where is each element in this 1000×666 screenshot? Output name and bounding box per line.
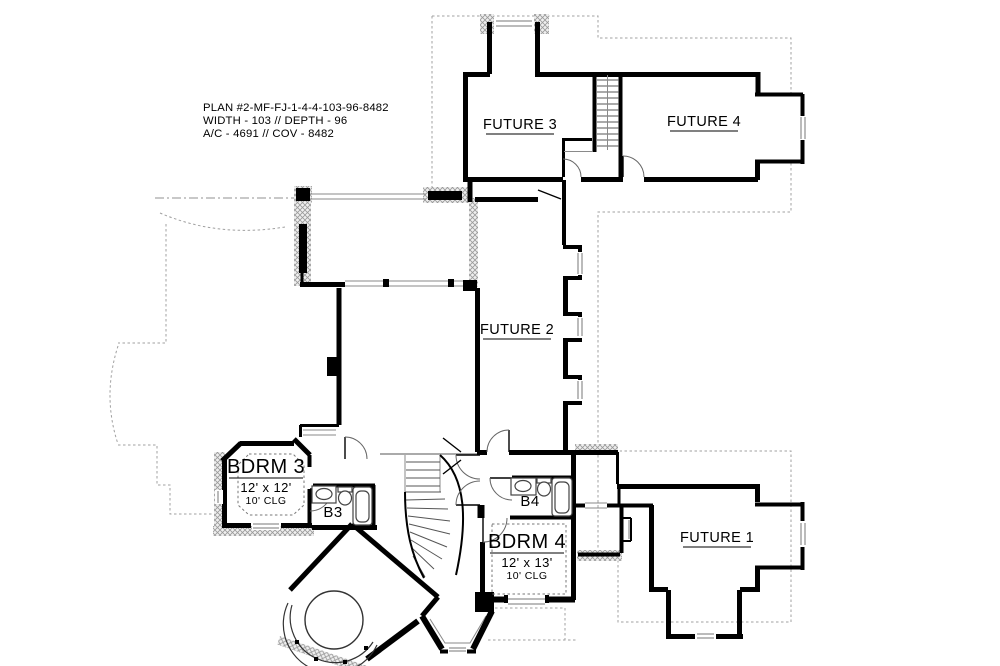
room-ceiling-bdrm3: 10' CLG bbox=[246, 495, 287, 507]
thin-lines bbox=[303, 194, 607, 643]
sink-icon bbox=[515, 481, 531, 492]
window-future4-right bbox=[799, 116, 807, 140]
room-label-bdrm4: BDRM 4 bbox=[488, 531, 566, 553]
plan-number-text: PLAN #2-MF-FJ-1-4-4-103-96-8482 bbox=[203, 102, 389, 114]
window-future2-bay2 bbox=[576, 317, 584, 338]
window-future1-right bbox=[799, 522, 807, 546]
room-label-bdrm3: BDRM 3 bbox=[227, 456, 305, 478]
room-label-future1: FUTURE 1 bbox=[680, 530, 754, 546]
room-label-future2: FUTURE 2 bbox=[480, 322, 554, 338]
floor-plan-canvas: PLAN #2-MF-FJ-1-4-4-103-96-8482 WIDTH - … bbox=[0, 0, 1000, 666]
room-size-bdrm4: 12' x 13' bbox=[501, 555, 552, 570]
window-future2-bay1 bbox=[576, 252, 584, 275]
sink-icon bbox=[316, 489, 332, 500]
staircase-curved bbox=[405, 455, 463, 578]
room-ceiling-bdrm4: 10' CLG bbox=[507, 570, 548, 582]
window-bdrm4-bottom bbox=[506, 595, 547, 607]
room-label-future3: FUTURE 3 bbox=[483, 117, 557, 133]
window-bdrm3-left bbox=[215, 490, 223, 504]
room-label-future4: FUTURE 4 bbox=[667, 114, 741, 130]
room-label-b4: B4 bbox=[520, 493, 539, 510]
staircase-upper bbox=[597, 75, 619, 150]
window-bdrm3-bottom bbox=[252, 521, 280, 530]
plan-area-text: A/C - 4691 // COV - 8482 bbox=[203, 128, 334, 140]
plan-dimensions-text: WIDTH - 103 // DEPTH - 96 bbox=[203, 115, 347, 127]
room-size-bdrm3: 12' x 12' bbox=[240, 480, 291, 495]
room-label-b3: B3 bbox=[323, 504, 342, 521]
floor-plan-page: PLAN #2-MF-FJ-1-4-4-103-96-8482 WIDTH - … bbox=[0, 0, 1000, 666]
toilet-icon bbox=[339, 491, 352, 505]
window-future1-bottom bbox=[696, 632, 715, 641]
window-future2-bay3 bbox=[576, 380, 584, 401]
window-bay-bottom bbox=[448, 645, 467, 654]
